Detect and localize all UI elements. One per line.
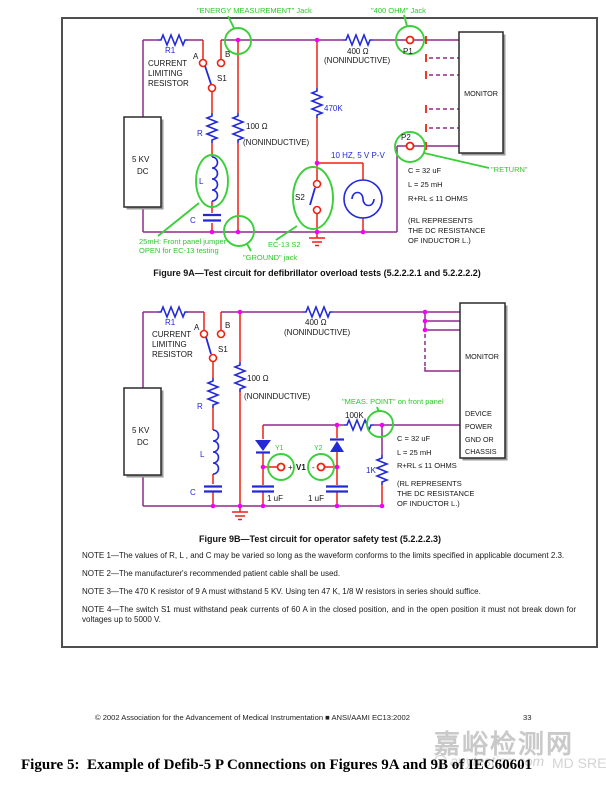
resistor-400ohm-9b [303,307,333,317]
capacitor-1uf-left [252,487,274,492]
label-b-9a: B [225,50,230,59]
label-100k-9b: 100K [345,411,364,420]
label-ground-jack: "GROUND" jack [243,253,297,262]
note-3: NOTE 3—The 470 K resistor of 9 A must wi… [82,587,576,597]
resistor-470k-9a [312,88,322,118]
label-r1-9b: R1 [165,318,176,327]
label-1uf-left: 1 uF [267,494,283,503]
label-l-9a: L [199,177,204,186]
label-400ohm-9b: 400 Ω [305,318,327,327]
label-sine-source-9a: 10 HZ, 5 V P-V [331,151,385,160]
label-limiting-9a: LIMITING [148,69,183,78]
switch-s2-9a [310,181,321,214]
spec-c-9a: C = 32 uF [408,166,442,175]
caption-figure-9a: Figure 9A—Test circuit for defibrillator… [153,268,480,278]
diode-y2 [330,440,344,453]
label-chassis: CHASSIS [465,447,497,456]
note-1: NOTE 1—The values of R, L , and C may be… [82,551,576,561]
note-4: NOTE 4—The switch S1 must withstand peak… [82,605,576,625]
footer-page-number: 33 [523,713,531,722]
resistor-100k-9b [344,420,374,430]
figure-9a: R1 CURRENT LIMITING RESISTOR A B S1 R L … [124,6,528,278]
label-monitor-9a: MONITOR [464,89,498,98]
resistor-400ohm-9a [343,35,373,45]
label-s2-9a: S2 [295,193,305,202]
sine-source-9a [344,180,382,218]
spec-l-9b: L = 25 mH [397,448,432,457]
spec-rl1-9a: (RL REPRESENTS [408,216,473,225]
label-c-9a: C [190,216,196,225]
label-100ohm-9a: 100 Ω [246,122,268,131]
label-resistor-9a: RESISTOR [148,79,189,88]
jack-v1-plus [278,464,285,471]
label-jumper-line2: OPEN for EC-13 testing [139,246,219,255]
label-p1-9a: P1 [403,47,413,56]
label-v1-plus: + [288,463,293,472]
label-1uf-right: 1 uF [308,494,324,503]
label-return-jack: "RETURN" [491,165,528,174]
label-470k-9a: 470K [324,104,343,113]
label-c-9b: C [190,488,196,497]
label-energy-jack: "ENERGY MEASUREMENT" Jack [197,6,312,15]
label-l-9b: L [200,450,205,459]
label-5kv-9b: 5 KV [132,426,150,435]
label-current-9a: CURRENT [148,59,187,68]
label-power: POWER [465,422,492,431]
spec-rl1-9b: (RL REPRESENTS [397,479,462,488]
jack-p1 [407,37,414,44]
label-noninductive2-9b: (NONINDUCTIVE) [284,328,351,337]
resistor-r1-9b [158,307,188,317]
resistor-r-9a [207,113,217,143]
note-2: NOTE 2—The manufacturer's recommended pa… [82,569,576,579]
label-resistor-9b: RESISTOR [152,350,193,359]
resistor-r-9b [208,378,218,408]
capacitor-c-9b [204,487,222,492]
figure-5-caption: Figure 5: Example of Defib-5 P Connectio… [21,757,532,774]
capacitor-c-9a [203,215,221,221]
inductor-l-9b [213,430,219,474]
spec-rl3-9b: OF INDUCTOR L.) [397,499,460,508]
figure-9b: R1 CURRENT LIMITING RESISTOR A B S1 R L … [124,303,508,544]
label-gnd-or: GND OR [465,435,494,444]
label-5kv-9a: 5 KV [132,155,150,164]
label-r1-9a: R1 [165,46,176,55]
label-a-9b: A [194,323,200,332]
watermark-overlay-text: MD SRE, [552,755,606,771]
label-ec13-s2: EC-13 S2 [268,240,301,249]
label-100ohm-9b: 100 Ω [247,374,269,383]
label-s1-9b: S1 [218,345,228,354]
resistor-100ohm-9b [235,362,245,392]
label-monitor-9b: MONITOR [465,352,499,361]
resistor-1k-9b [377,455,387,485]
label-noninductive1-9a: (NONINDUCTIVE) [243,138,310,147]
label-a-9a: A [193,52,199,61]
capacitor-1uf-right [326,487,348,492]
label-v1: V1 [296,463,306,472]
label-noninductive2-9a: (NONINDUCTIVE) [324,56,391,65]
footer-copyright: © 2002 Association for the Advancement o… [95,713,410,722]
jack-p2 [407,143,414,150]
spec-rrl-9a: R+RL ≤ 11 OHMS [408,194,468,203]
resistor-r1-9a [158,35,188,45]
label-limiting-9b: LIMITING [152,340,187,349]
fig9b-wires [143,312,460,506]
notes-block: NOTE 1—The values of R, L , and C may be… [82,551,576,633]
label-device: DEVICE [465,409,492,418]
label-y1: Y1 [275,445,284,452]
spec-rl2-9b: THE DC RESISTANCE [397,489,474,498]
spec-l-9a: L = 25 mH [408,180,443,189]
label-1k-9b: 1K [366,466,376,475]
inductor-l-9a [212,157,218,201]
jack-v1-minus [318,464,325,471]
fig9a-monitor-dashed-leads [429,58,459,128]
resistor-100ohm-9a [233,113,243,143]
spec-c-9b: C = 32 uF [397,434,431,443]
label-r-9b: R [197,402,203,411]
label-p2-9a: P2 [401,133,411,142]
caption-figure-9b: Figure 9B—Test circuit for operator safe… [199,534,441,544]
label-v1-minus: - [312,463,315,472]
label-400ohm-9a: 400 Ω [347,47,369,56]
label-meas-point: "MEAS. POINT" on front panel [342,397,444,406]
spec-rl2-9a: THE DC RESISTANCE [408,226,485,235]
label-dc-9b: DC [137,438,149,447]
label-r-9a: R [197,129,203,138]
spec-rrl-9b: R+RL ≤ 11 OHMS [397,461,457,470]
label-b-9b: B [225,321,230,330]
fig9a-node-dots [210,38,366,235]
label-noninductive1-9b: (NONINDUCTIVE) [244,392,311,401]
label-current-9b: CURRENT [152,330,191,339]
spec-rl3-9a: OF INDUCTOR L.) [408,236,471,245]
label-dc-9a: DC [137,167,149,176]
label-400ohm-jack: "400 OHM" Jack [371,6,426,15]
fig9b-node-dots [211,310,428,509]
diode-y1 [255,440,271,453]
label-s1-9a: S1 [217,74,227,83]
fig9a-wires [143,40,459,232]
document-page: R1 CURRENT LIMITING RESISTOR A B S1 R L … [0,0,606,793]
label-y2: Y2 [314,445,323,452]
label-jumper-line1: 25mH: Front panel jumper [139,237,227,246]
